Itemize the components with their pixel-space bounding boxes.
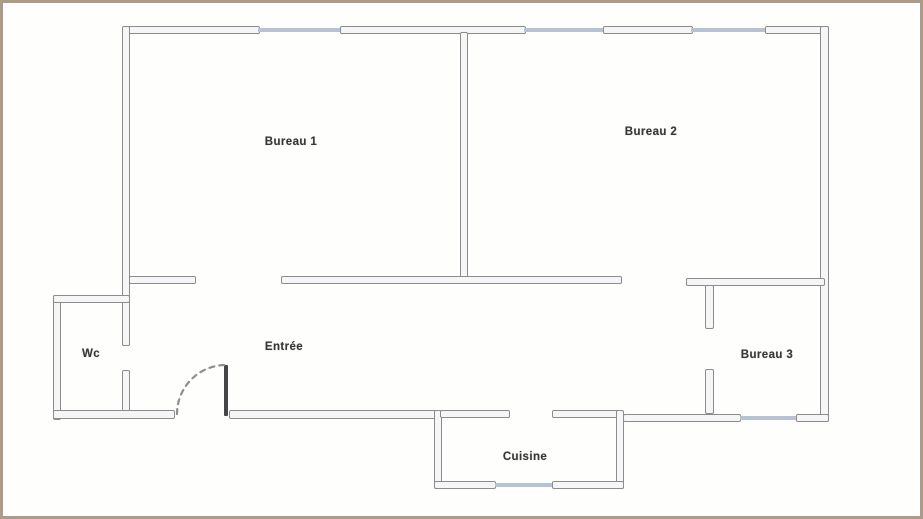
room-label-wc: Wc [33, 348, 149, 360]
window-bureau1-top [258, 28, 341, 32]
room-label-bureau2: Bureau 2 [593, 126, 709, 138]
floor-plan-page: Bureau 1 Bureau 2 Bureau 3 Wc Entrée Cui… [0, 0, 923, 519]
room-label-entree: Entrée [226, 341, 342, 353]
wall-divider-bureau1-bureau2 [460, 32, 468, 284]
wall-bottom-segment-4 [796, 414, 829, 422]
floor-plan-drawing: Bureau 1 Bureau 2 Bureau 3 Wc Entrée Cui… [3, 3, 920, 516]
room-label-bureau1: Bureau 1 [233, 136, 349, 148]
wall-cuisine-top-right [552, 410, 619, 418]
wall-bottom-segment-2 [229, 410, 438, 419]
wall-top-segment-2 [340, 26, 526, 34]
room-label-bureau3: Bureau 3 [709, 349, 825, 361]
wall-corridor-main [281, 276, 622, 284]
wall-bureau3-left-upper [705, 285, 714, 329]
room-label-cuisine: Cuisine [467, 451, 583, 463]
wall-top-segment-1 [123, 26, 260, 34]
wall-bottom-segment-3 [623, 414, 741, 422]
wall-cuisine-bottom-left [434, 481, 496, 489]
wall-left-below-wc-door [122, 370, 130, 414]
wall-right [820, 26, 829, 422]
wall-cuisine-top-left [440, 410, 510, 418]
wall-cuisine-bottom-right [552, 481, 624, 489]
window-bureau2-top-left [524, 28, 604, 32]
window-bureau2-top-right [691, 28, 767, 32]
wall-bottom-segment-1 [53, 410, 175, 419]
wall-top-segment-3 [603, 26, 693, 34]
wall-cuisine-right [616, 410, 624, 489]
wall-cuisine-left [434, 410, 442, 489]
window-cuisine-bottom [495, 483, 553, 487]
wall-wc-top [53, 295, 130, 303]
window-bureau3-bottom [740, 416, 797, 420]
wall-corridor-stub-left [129, 276, 196, 284]
entrance-door-leaf [224, 365, 228, 416]
wall-bureau3-left-lower [705, 369, 714, 414]
